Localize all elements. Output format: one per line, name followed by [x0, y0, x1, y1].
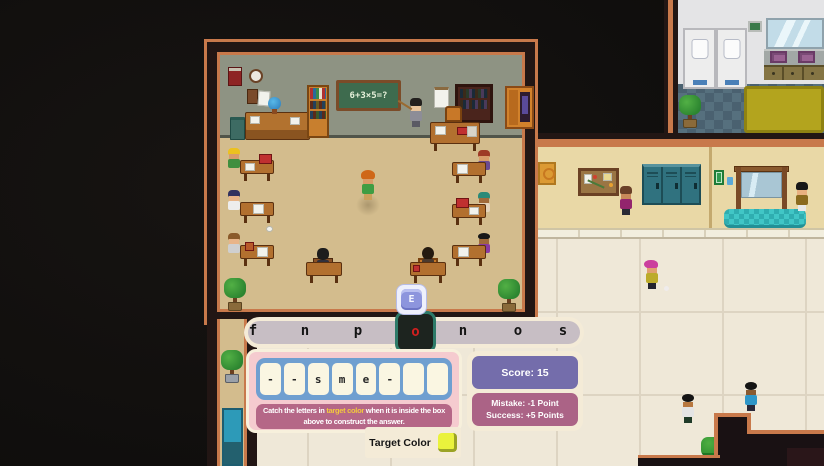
answer-tile: e	[356, 363, 377, 395]
wall-book	[247, 89, 258, 104]
answer-tile: -	[379, 363, 400, 395]
step-border	[749, 430, 824, 434]
corridor-plant	[221, 350, 243, 383]
answer-panel: - - s m e - Catch the letters in target …	[246, 349, 462, 433]
npc-character	[618, 186, 634, 216]
hallway-top-border	[538, 133, 824, 147]
locker-door	[663, 167, 682, 203]
corridor-wall	[207, 319, 220, 466]
globe-stand	[272, 109, 277, 114]
rules-badge: Mistake: -1 Point Success: +5 Points	[472, 393, 578, 426]
mistake-rule: Mistake: -1 Point	[491, 398, 559, 409]
student-chair	[445, 106, 462, 122]
e-key-prompt[interactable]: E	[396, 284, 427, 315]
score-value: Score: 15	[501, 367, 548, 379]
letter-slot: o	[510, 323, 526, 339]
sink	[770, 51, 787, 63]
target-color-swatch	[438, 433, 457, 452]
letter-slot: n	[455, 323, 471, 339]
letter-slot: p	[350, 323, 366, 339]
player-character	[360, 170, 376, 200]
toilet-stall	[716, 28, 747, 89]
game-screen: 6+3×5=?	[0, 0, 824, 466]
letter-slot: s	[555, 323, 571, 339]
student-desk	[306, 262, 342, 276]
desk-paper	[250, 116, 260, 124]
letter-slot: f	[245, 323, 261, 339]
bulletin-board	[578, 168, 619, 196]
target-color-label: Target Color	[369, 437, 431, 449]
dark-wall-step	[717, 415, 748, 466]
wall-picture	[748, 21, 762, 32]
toilet-stall	[683, 28, 716, 89]
letter-slot: n	[297, 323, 313, 339]
npc-character	[743, 382, 759, 412]
locker-door	[682, 167, 699, 203]
student-desk	[430, 122, 480, 144]
step-border	[714, 413, 751, 417]
student-desk	[452, 245, 486, 259]
crumpled-paper	[266, 226, 273, 232]
dark-wall-step	[638, 458, 720, 466]
score-panel: Score: 15 Mistake: -1 Point Success: +5 …	[467, 351, 583, 431]
classroom-plant	[498, 279, 520, 312]
instruction-badge: Catch the letters in target color when i…	[256, 404, 452, 429]
blackboard: 6+3×5=?	[336, 80, 401, 111]
student-desk	[240, 160, 274, 174]
npc-character	[794, 182, 810, 212]
orange-cabinet	[505, 86, 534, 129]
instruction-text: Catch the letters in	[263, 406, 326, 415]
student-desk	[240, 245, 274, 259]
score-badge: Score: 15	[472, 356, 578, 389]
dark-wall-inner	[787, 448, 824, 466]
target-color-panel: Target Color	[365, 427, 461, 458]
red-poster	[228, 67, 242, 86]
student-desk	[452, 204, 486, 218]
bathroom-plant	[679, 95, 701, 128]
answer-tile: -	[284, 363, 305, 395]
bench-glass	[741, 172, 782, 198]
wall-divider	[709, 147, 712, 228]
e-key-icon: E	[401, 289, 422, 310]
student-desk	[410, 262, 446, 276]
answer-tile: -	[260, 363, 281, 395]
dust-particle	[664, 286, 669, 291]
answer-tiles: - - s m e -	[256, 358, 452, 400]
answer-tile: s	[308, 363, 329, 395]
answer-tile: m	[332, 363, 353, 395]
bath-mat	[744, 86, 824, 133]
bathroom-mirror	[766, 18, 824, 49]
hallway-lockers	[642, 164, 701, 205]
npc-character	[680, 394, 696, 424]
fountain-icon	[727, 177, 733, 185]
bathroom-left-border	[664, 0, 678, 133]
locker-door	[644, 167, 663, 203]
success-rule: Success: +5 Points	[486, 410, 564, 421]
answer-tile	[427, 363, 448, 395]
wall-clipboard	[434, 87, 449, 108]
hallway-baseboard	[538, 228, 824, 239]
answer-tile	[403, 363, 424, 395]
teacher-character	[408, 98, 424, 128]
catch-box: o	[395, 311, 436, 353]
exit-sign	[714, 170, 724, 185]
teacher-hair	[410, 98, 422, 106]
student-desk	[452, 162, 486, 176]
classroom-plant	[224, 278, 246, 311]
cabinet-row	[764, 65, 824, 80]
trash-can	[230, 117, 245, 140]
corridor-locker	[222, 408, 243, 466]
desk-paper	[290, 117, 300, 125]
classroom-bookshelf	[307, 85, 329, 138]
npc-character	[644, 260, 660, 290]
instruction-highlight: target color	[326, 406, 364, 415]
sink	[798, 51, 815, 63]
student-desk	[240, 202, 274, 216]
wall-clock-icon	[249, 69, 263, 83]
step-border	[638, 455, 720, 458]
boxed-letter: o	[411, 324, 419, 340]
blackboard-equation: 6+3×5=?	[350, 91, 388, 101]
orange-poster	[538, 162, 556, 185]
